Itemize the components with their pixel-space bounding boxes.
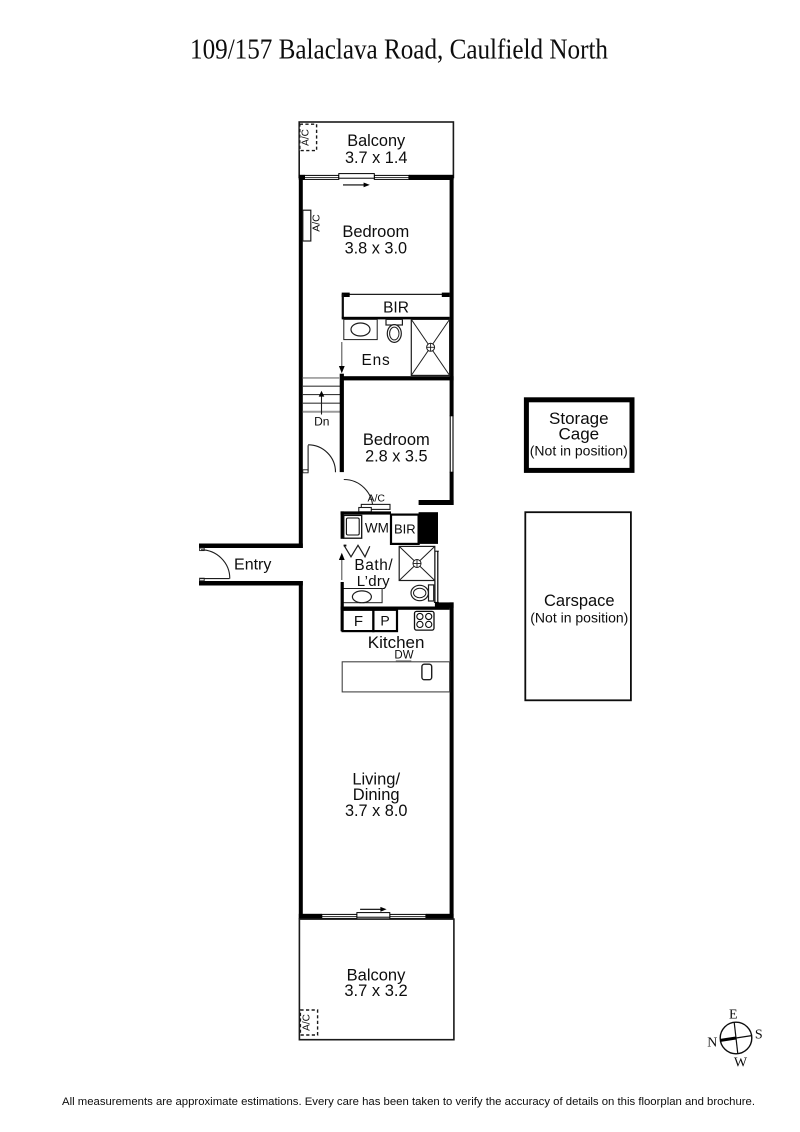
svg-text:All measurements are approxima: All measurements are approximate estimat…: [62, 1096, 755, 1108]
svg-text:E: E: [729, 1008, 738, 1023]
svg-text:3.7 x 3.2: 3.7 x 3.2: [344, 982, 407, 1000]
svg-text:Dn: Dn: [314, 414, 329, 428]
svg-text:N: N: [707, 1035, 717, 1050]
svg-text:A/C: A/C: [301, 129, 312, 146]
svg-text:F: F: [354, 613, 363, 630]
svg-text:BIR: BIR: [394, 521, 416, 536]
svg-text:3.7 x 1.4: 3.7 x 1.4: [345, 149, 407, 167]
svg-text:WM: WM: [365, 521, 389, 536]
svg-text:Carspace: Carspace: [544, 592, 615, 610]
svg-text:3.7 x 8.0: 3.7 x 8.0: [345, 802, 407, 820]
svg-text:Balcony: Balcony: [347, 132, 406, 150]
svg-text:2.8 x 3.5: 2.8 x 3.5: [365, 448, 427, 466]
svg-text:(Not in position): (Not in position): [530, 609, 628, 625]
svg-text:Bath/: Bath/: [354, 557, 393, 574]
svg-text:P: P: [380, 613, 389, 629]
svg-text:A/C: A/C: [367, 493, 385, 505]
svg-text:3.8 x 3.0: 3.8 x 3.0: [345, 240, 407, 258]
svg-text:Entry: Entry: [234, 557, 271, 574]
svg-text:Bedroom: Bedroom: [363, 431, 430, 449]
svg-text:BIR: BIR: [383, 300, 409, 317]
svg-text:L’dry: L’dry: [357, 573, 390, 590]
svg-text:W: W: [734, 1055, 748, 1070]
svg-text:S: S: [755, 1027, 763, 1042]
svg-text:DW: DW: [394, 650, 413, 662]
svg-text:A/C: A/C: [301, 1014, 312, 1031]
svg-text:(Not in position): (Not in position): [530, 443, 628, 459]
svg-text:Bedroom: Bedroom: [342, 223, 409, 241]
svg-text:Cage: Cage: [558, 425, 599, 444]
svg-text:109/157 Balaclava Road, Caulfi: 109/157 Balaclava Road, Caulfield North: [190, 34, 608, 66]
svg-text:A/C: A/C: [311, 214, 323, 232]
svg-text:Ens: Ens: [362, 352, 391, 369]
